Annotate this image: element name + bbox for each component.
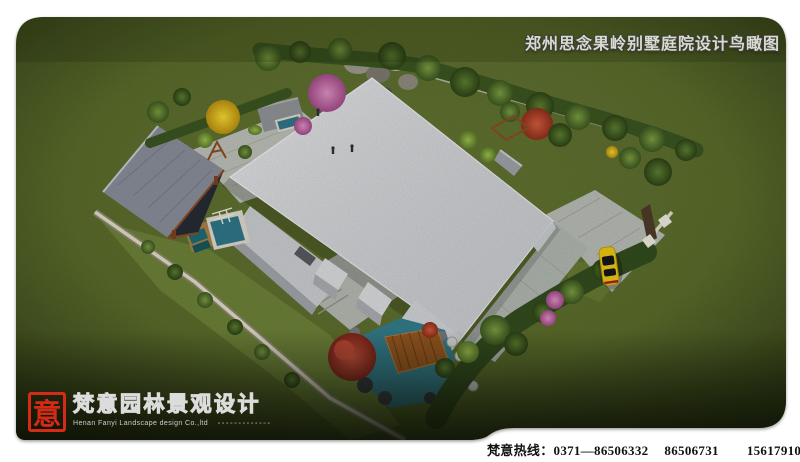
company-logo: 意 梵意园林景观设计 Henan Fanyi Landscape design …	[28, 392, 272, 432]
hotline-bar: 梵意热线：0371—865063328650673115617910900（孙）	[487, 440, 787, 459]
phone-2: 86506731	[664, 443, 718, 458]
grass-texture	[16, 17, 786, 440]
phone-1: 0371—86506332	[554, 443, 649, 458]
company-name-en: Henan Fanyi Landscape design Co.,ltd▫▫▫▫…	[73, 420, 272, 427]
phone-3: 15617910900（孙）	[747, 443, 800, 458]
company-name-cn: 梵意园林景观设计	[73, 392, 272, 418]
seal-stamp-icon: 意	[28, 392, 66, 432]
page-title: 郑州思念果岭别墅庭院设计鸟瞰图	[520, 30, 780, 54]
logo-decor-dots: ▫▫▫▫▫▫▫▫▫▫▫▫▫	[218, 421, 272, 427]
design-poster: 郑州思念果岭别墅庭院设计鸟瞰图 意 梵意园林景观设计 Henan Fanyi L…	[0, 0, 800, 462]
hotline-label: 梵意热线：	[487, 443, 554, 458]
